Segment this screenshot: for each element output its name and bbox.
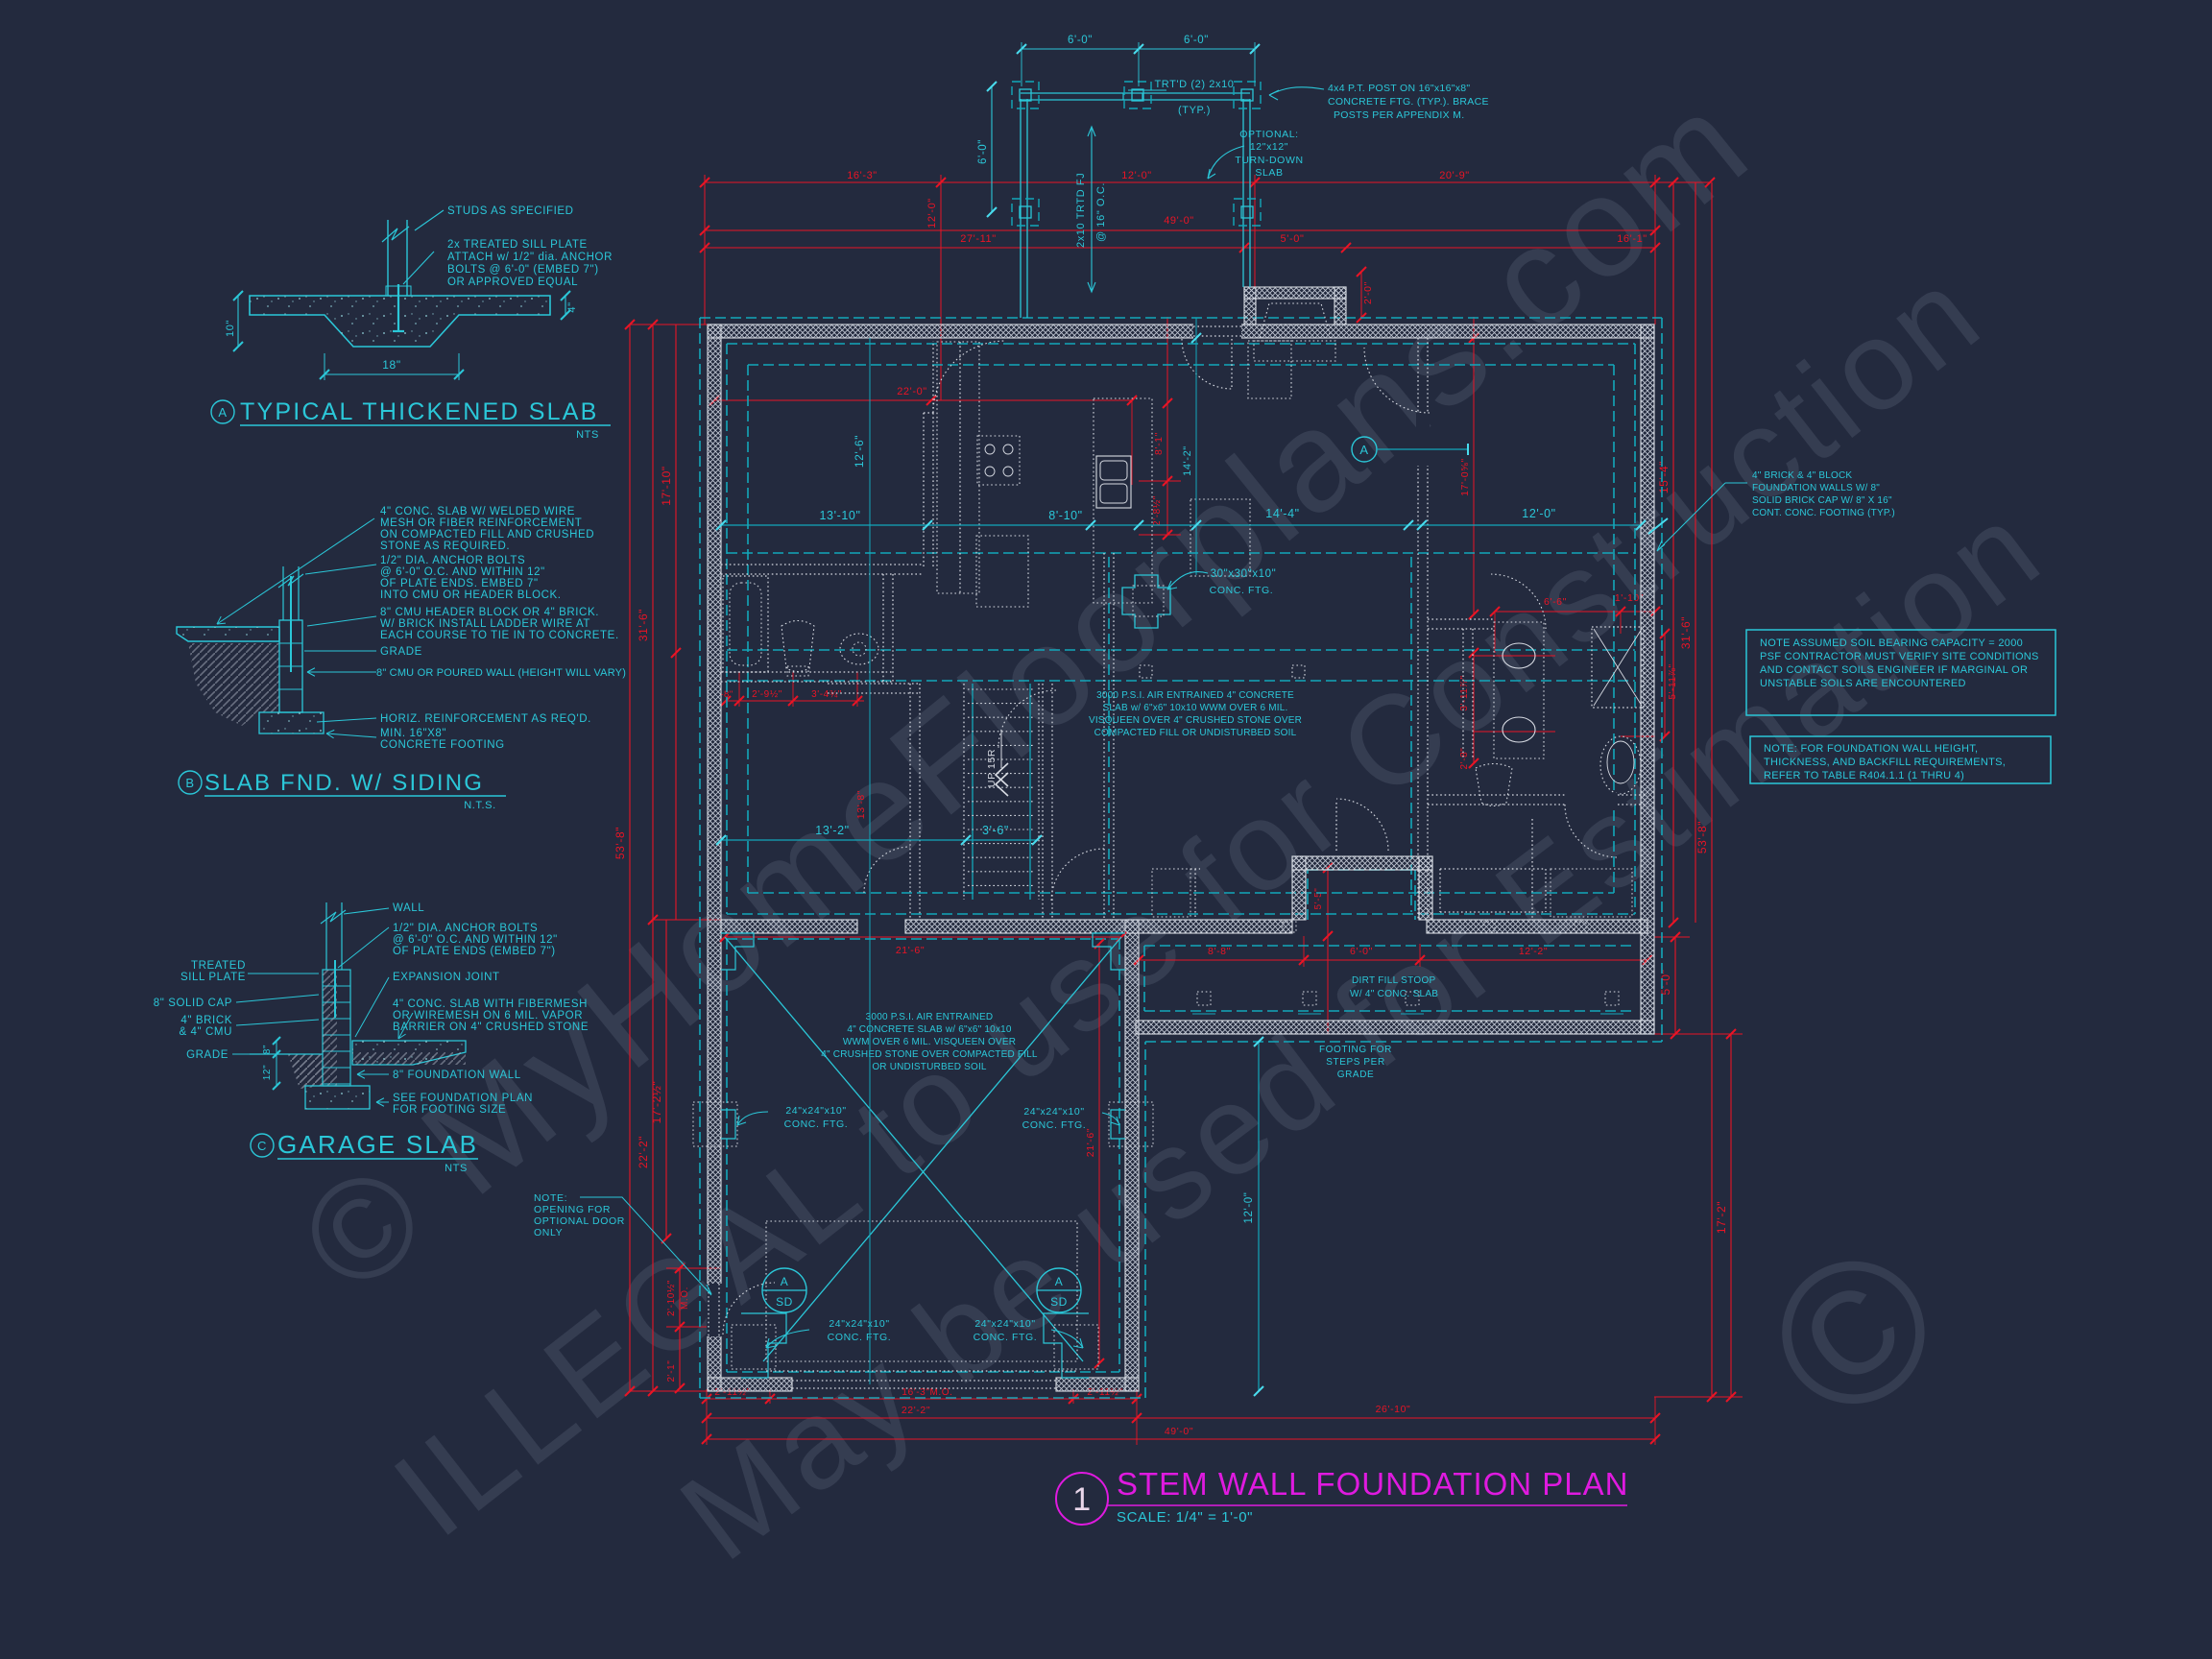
svg-text:POSTS PER APPENDIX M.: POSTS PER APPENDIX M. — [1334, 109, 1464, 121]
svg-text:SEE FOUNDATION PLAN: SEE FOUNDATION PLAN — [393, 1093, 533, 1104]
svg-text:20'-9": 20'-9" — [1439, 170, 1470, 181]
svg-text:CONT. CONC. FOOTING (TYP.): CONT. CONC. FOOTING (TYP.) — [1752, 508, 1895, 518]
svg-text:3000 P.S.I. AIR ENTRAINED 4" C: 3000 P.S.I. AIR ENTRAINED 4" CONCRETE — [1096, 690, 1294, 701]
svg-text:21'-6": 21'-6" — [896, 945, 925, 956]
svg-text:OR WIREMESH ON 6 MIL. VAPOR: OR WIREMESH ON 6 MIL. VAPOR — [393, 1010, 583, 1022]
svg-text:INTO CMU OR HEADER BLOCK.: INTO CMU OR HEADER BLOCK. — [380, 589, 562, 601]
svg-text:SLAB FND. W/ SIDING: SLAB FND. W/ SIDING — [204, 770, 484, 796]
svg-text:ON COMPACTED FILL AND CRUSHED: ON COMPACTED FILL AND CRUSHED — [380, 529, 594, 541]
svg-text:A: A — [781, 1275, 789, 1288]
svg-text:17'-0⅝": 17'-0⅝" — [1459, 458, 1471, 496]
svg-text:5'-0": 5'-0" — [1281, 233, 1305, 245]
svg-text:NTS: NTS — [445, 1163, 468, 1174]
svg-text:1: 1 — [1072, 1481, 1092, 1518]
svg-text:GRADE: GRADE — [380, 646, 422, 658]
svg-text:12'-0": 12'-0" — [1522, 507, 1555, 520]
svg-text:SLAB w/ 6"x6" 10x10 WWM OVER 6: SLAB w/ 6"x6" 10x10 WWM OVER 6 MIL. — [1102, 703, 1287, 713]
svg-text:CONC. FTG.: CONC. FTG. — [1210, 585, 1274, 596]
svg-text:TURN-DOWN: TURN-DOWN — [1235, 155, 1303, 166]
svg-text:ONLY: ONLY — [534, 1227, 563, 1238]
svg-text:CONC. FTG.: CONC. FTG. — [1022, 1119, 1087, 1131]
svg-text:22'-2": 22'-2" — [637, 1136, 650, 1168]
svg-text:22'-0": 22'-0" — [897, 386, 927, 397]
svg-text:14'-2": 14'-2" — [1182, 445, 1193, 476]
svg-text:NTS: NTS — [576, 429, 599, 441]
svg-text:16'-3": 16'-3" — [847, 170, 878, 181]
svg-text:OR APPROVED EQUAL: OR APPROVED EQUAL — [447, 276, 578, 288]
svg-text:22'-2": 22'-2" — [902, 1405, 930, 1416]
svg-text:A: A — [1359, 443, 1368, 457]
svg-text:OR UNDISTURBED SOIL: OR UNDISTURBED SOIL — [872, 1062, 987, 1072]
svg-text:TYPICAL THICKENED SLAB: TYPICAL THICKENED SLAB — [240, 398, 599, 425]
svg-text:2'-8½": 2'-8½" — [1152, 495, 1163, 526]
svg-text:ATTACH w/ 1/2" dia. ANCHOR: ATTACH w/ 1/2" dia. ANCHOR — [447, 252, 613, 263]
svg-text:@ 6'-0" O.C. AND WITHIN 12": @ 6'-0" O.C. AND WITHIN 12" — [380, 566, 545, 578]
svg-text:12": 12" — [262, 1065, 273, 1080]
svg-text:EXPANSION JOINT: EXPANSION JOINT — [393, 972, 500, 983]
svg-text:6'-0": 6'-0" — [1068, 35, 1093, 46]
svg-text:GRADE: GRADE — [186, 1049, 228, 1061]
svg-text:14'-4": 14'-4" — [1265, 507, 1299, 520]
svg-text:OPTIONAL:: OPTIONAL: — [1239, 129, 1298, 140]
svg-text:49'-0": 49'-0" — [1164, 215, 1194, 227]
svg-text:SOLID BRICK CAP W/ 8" X 16": SOLID BRICK CAP W/ 8" X 16" — [1752, 495, 1892, 506]
svg-text:12'-0": 12'-0" — [1243, 1192, 1255, 1224]
svg-text:2'-1": 2'-1" — [666, 1360, 677, 1382]
svg-text:13'-10": 13'-10" — [820, 509, 861, 522]
svg-text:BOLTS @ 6'-0" (EMBED 7"): BOLTS @ 6'-0" (EMBED 7") — [447, 264, 599, 276]
svg-text:31'-6": 31'-6" — [637, 609, 650, 641]
svg-text:(TYP.): (TYP.) — [1178, 105, 1211, 116]
svg-text:12'-0": 12'-0" — [1121, 170, 1152, 181]
svg-text:8'-10": 8'-10" — [1048, 509, 1082, 522]
svg-text:2'-10½": 2'-10½" — [666, 1280, 677, 1316]
svg-text:4" CONC. SLAB WITH FIBERMESH: 4" CONC. SLAB WITH FIBERMESH — [393, 998, 588, 1010]
svg-text:SD: SD — [1050, 1295, 1068, 1309]
svg-text:5'-11⅞": 5'-11⅞" — [1668, 663, 1678, 699]
svg-text:OF PLATE ENDS (EMBED 7"): OF PLATE ENDS (EMBED 7") — [393, 946, 556, 957]
svg-text:4x4 P.T. POST ON 16"x16"x8": 4x4 P.T. POST ON 16"x16"x8" — [1328, 83, 1470, 94]
svg-text:HORIZ. REINFORCEMENT AS REQ'D.: HORIZ. REINFORCEMENT AS REQ'D. — [380, 713, 591, 725]
svg-text:WWM OVER 6 MIL. VISQUEEN OVER: WWM OVER 6 MIL. VISQUEEN OVER — [843, 1037, 1016, 1047]
svg-text:30"x30"x10": 30"x30"x10" — [1211, 568, 1277, 580]
svg-text:CONCRETE FTG. (TYP.). BRACE: CONCRETE FTG. (TYP.). BRACE — [1328, 96, 1489, 108]
svg-text:17'-2½": 17'-2½" — [650, 1081, 663, 1124]
svg-text:REFER TO TABLE R404.1.1 (1 THR: REFER TO TABLE R404.1.1 (1 THRU 4) — [1764, 770, 1964, 781]
svg-text:& 4" CMU: & 4" CMU — [179, 1026, 232, 1038]
svg-text:4" CRUSHED STONE OVER COMPACTE: 4" CRUSHED STONE OVER COMPACTED FILL — [821, 1049, 1038, 1060]
svg-text:3'-4¾": 3'-4¾" — [811, 689, 842, 700]
svg-text:NOTE:: NOTE: — [534, 1192, 567, 1204]
svg-text:5'-0": 5'-0" — [1659, 970, 1672, 996]
svg-text:8" CMU HEADER BLOCK OR 4" BRIC: 8" CMU HEADER BLOCK OR 4" BRICK. — [380, 607, 599, 618]
svg-text:17'-10": 17'-10" — [660, 466, 673, 505]
svg-text:2'-8": 2'-8" — [1459, 748, 1470, 770]
svg-text:6'-0": 6'-0" — [977, 139, 989, 164]
svg-text:M.O.: M.O. — [680, 1286, 690, 1310]
svg-text:MESH OR FIBER REINFORCEMENT: MESH OR FIBER REINFORCEMENT — [380, 517, 582, 529]
svg-text:1'-10": 1'-10" — [1615, 592, 1644, 604]
svg-text:A: A — [1055, 1275, 1064, 1288]
svg-text:8": 8" — [262, 1045, 273, 1054]
svg-text:PSF CONTRACTOR MUST VERIFY SIT: PSF CONTRACTOR MUST VERIFY SITE CONDITIO… — [1760, 651, 2039, 662]
svg-text:@ 16" O.C.: @ 16" O.C. — [1095, 182, 1107, 242]
svg-text:CONC. FTG.: CONC. FTG. — [784, 1118, 849, 1130]
svg-text:13'-8": 13'-8" — [855, 790, 867, 819]
svg-text:TREATED: TREATED — [191, 960, 246, 972]
svg-text:6'-6": 6'-6" — [1544, 596, 1567, 608]
svg-text:4": 4" — [566, 301, 578, 312]
svg-text:SILL PLATE: SILL PLATE — [180, 972, 246, 983]
svg-text:2'-0": 2'-0" — [1362, 281, 1374, 304]
svg-text:C: C — [257, 1139, 267, 1153]
svg-text:3000 P.S.I. AIR ENTRAINED: 3000 P.S.I. AIR ENTRAINED — [866, 1012, 994, 1022]
svg-text:1/2" DIA. ANCHOR BOLTS: 1/2" DIA. ANCHOR BOLTS — [380, 555, 525, 566]
svg-text:24"x24"x10": 24"x24"x10" — [785, 1105, 846, 1117]
svg-text:12'-6": 12'-6" — [853, 435, 866, 468]
svg-text:27'-11": 27'-11" — [960, 233, 997, 245]
svg-text:MIN. 16"X8": MIN. 16"X8" — [380, 728, 446, 739]
svg-text:53'-8": 53'-8" — [613, 827, 627, 859]
svg-text:FOUNDATION WALLS W/ 8": FOUNDATION WALLS W/ 8" — [1752, 483, 1880, 493]
svg-text:16'-1": 16'-1" — [1617, 233, 1647, 245]
svg-text:THICKNESS, AND BACKFILL REQUIR: THICKNESS, AND BACKFILL REQUIREMENTS, — [1764, 757, 2006, 768]
svg-text:12'-2": 12'-2" — [1519, 946, 1548, 957]
svg-text:W/ BRICK INSTALL LADDER WIRE A: W/ BRICK INSTALL LADDER WIRE AT — [380, 618, 590, 630]
svg-text:10": 10" — [225, 320, 236, 337]
svg-text:3'-6": 3'-6" — [982, 824, 1009, 837]
svg-text:26'-10": 26'-10" — [1376, 1404, 1411, 1415]
svg-text:12"x12": 12"x12" — [1250, 141, 1288, 153]
svg-text:17'-2": 17'-2" — [1715, 1201, 1728, 1234]
svg-text:BARRIER ON 4" CRUSHED STONE: BARRIER ON 4" CRUSHED STONE — [393, 1022, 589, 1033]
svg-text:8'-1": 8'-1" — [1153, 432, 1165, 455]
svg-text:OPTIONAL DOOR: OPTIONAL DOOR — [534, 1215, 625, 1227]
svg-text:B: B — [185, 776, 194, 790]
svg-text:STUDS AS SPECIFIED: STUDS AS SPECIFIED — [447, 205, 574, 217]
svg-text:SD: SD — [776, 1295, 793, 1309]
svg-text:FOR FOOTING SIZE: FOR FOOTING SIZE — [393, 1104, 506, 1116]
svg-text:2x TREATED SILL PLATE: 2x TREATED SILL PLATE — [447, 239, 588, 251]
svg-text:UNSTABLE SOILS ARE ENCOUNTERED: UNSTABLE SOILS ARE ENCOUNTERED — [1760, 678, 1966, 689]
svg-text:24"x24"x10": 24"x24"x10" — [974, 1318, 1035, 1330]
svg-text:N.T.S.: N.T.S. — [464, 800, 496, 811]
svg-text:8" CMU OR POURED WALL (HEIGHT: 8" CMU OR POURED WALL (HEIGHT WILL VARY) — [376, 667, 626, 679]
svg-text:18": 18" — [382, 358, 400, 372]
svg-text:SCALE: 1/4" = 1'-0": SCALE: 1/4" = 1'-0" — [1117, 1509, 1253, 1526]
svg-text:4" CONC. SLAB W/ WELDED WIRE: 4" CONC. SLAB W/ WELDED WIRE — [380, 506, 575, 517]
svg-text:NOTE ASSUMED SOIL BEARING CAPA: NOTE ASSUMED SOIL BEARING CAPACITY = 200… — [1760, 637, 2023, 649]
svg-text:OF PLATE ENDS. EMBED 7": OF PLATE ENDS. EMBED 7" — [380, 578, 539, 589]
svg-text:STONE AS REQUIRED.: STONE AS REQUIRED. — [380, 541, 510, 552]
svg-text:CONCRETE FOOTING: CONCRETE FOOTING — [380, 739, 505, 751]
svg-text:GRADE: GRADE — [1337, 1070, 1375, 1080]
svg-text:24"x24"x10": 24"x24"x10" — [829, 1318, 889, 1330]
svg-text:4" BRICK & 4" BLOCK: 4" BRICK & 4" BLOCK — [1752, 470, 1852, 481]
svg-text:2x10 TRTD FJ: 2x10 TRTD FJ — [1075, 173, 1087, 248]
svg-text:TRT'D (2) 2x10: TRT'D (2) 2x10 — [1154, 79, 1234, 90]
svg-text:5'-5": 5'-5" — [1313, 888, 1324, 910]
svg-text:A: A — [218, 405, 227, 420]
svg-text:AND CONTACT SOILS ENGINEER IF: AND CONTACT SOILS ENGINEER IF MARGINAL O… — [1760, 664, 2028, 676]
svg-text:DIRT FILL STOOP: DIRT FILL STOOP — [1352, 975, 1436, 986]
svg-text:CONC. FTG.: CONC. FTG. — [974, 1332, 1038, 1343]
svg-text:NOTE: FOR FOUNDATION WALL HEIG: NOTE: FOR FOUNDATION WALL HEIGHT, — [1764, 743, 1978, 755]
svg-text:12'-0": 12'-0" — [926, 198, 938, 228]
svg-text:COMPACTED FILL OR UNDISTURBED: COMPACTED FILL OR UNDISTURBED SOIL — [1094, 728, 1297, 738]
svg-text:24"x24"x10": 24"x24"x10" — [1023, 1106, 1084, 1118]
svg-text:4" CONCRETE SLAB w/ 6"x6" 10x1: 4" CONCRETE SLAB w/ 6"x6" 10x10 — [847, 1024, 1012, 1035]
svg-text:2'-9½": 2'-9½" — [752, 689, 782, 700]
svg-text:8'-8": 8'-8" — [1208, 946, 1231, 957]
svg-text:49'-0": 49'-0" — [1165, 1426, 1193, 1437]
svg-text:UP 15R: UP 15R — [986, 749, 998, 787]
svg-text:WALL: WALL — [393, 902, 424, 914]
svg-text:SLAB: SLAB — [1255, 167, 1283, 179]
svg-text:STEPS PER: STEPS PER — [1326, 1057, 1385, 1068]
svg-text:21'-6": 21'-6" — [1085, 1128, 1096, 1157]
svg-text:CONC. FTG.: CONC. FTG. — [828, 1332, 892, 1343]
svg-text:16'-3"M.O.: 16'-3"M.O. — [902, 1387, 952, 1398]
svg-text:6'-0": 6'-0" — [1184, 35, 1209, 46]
svg-text:31'-6": 31'-6" — [1679, 616, 1693, 649]
svg-text:13'-2": 13'-2" — [815, 824, 849, 837]
svg-text:8" FOUNDATION WALL: 8" FOUNDATION WALL — [393, 1070, 521, 1081]
svg-text:STEM WALL FOUNDATION PLAN: STEM WALL FOUNDATION PLAN — [1117, 1466, 1629, 1502]
svg-text:FOOTING FOR: FOOTING FOR — [1319, 1045, 1392, 1055]
svg-text:8" SOLID CAP: 8" SOLID CAP — [154, 998, 232, 1009]
svg-text:OPENING FOR: OPENING FOR — [534, 1204, 611, 1215]
svg-text:W/ 4" CONC. SLAB: W/ 4" CONC. SLAB — [1350, 989, 1438, 999]
svg-text:1/2" DIA. ANCHOR BOLTS: 1/2" DIA. ANCHOR BOLTS — [393, 923, 538, 934]
svg-text:GARAGE SLAB: GARAGE SLAB — [277, 1130, 478, 1159]
svg-text:53'-8": 53'-8" — [1695, 821, 1709, 854]
svg-text:6'-0": 6'-0" — [1350, 946, 1373, 957]
svg-text:EACH COURSE TO TIE IN TO CONCR: EACH COURSE TO TIE IN TO CONCRETE. — [380, 630, 619, 641]
svg-text:@ 6'-0" O.C. AND WITHIN 12": @ 6'-0" O.C. AND WITHIN 12" — [393, 934, 558, 946]
svg-text:VISQUEEN OVER 4" CRUSHED STON: VISQUEEN OVER 4" CRUSHED STONE OVER — [1089, 715, 1302, 726]
svg-text:15'-4": 15'-4" — [1657, 461, 1671, 493]
svg-text:4" BRICK: 4" BRICK — [180, 1015, 232, 1026]
